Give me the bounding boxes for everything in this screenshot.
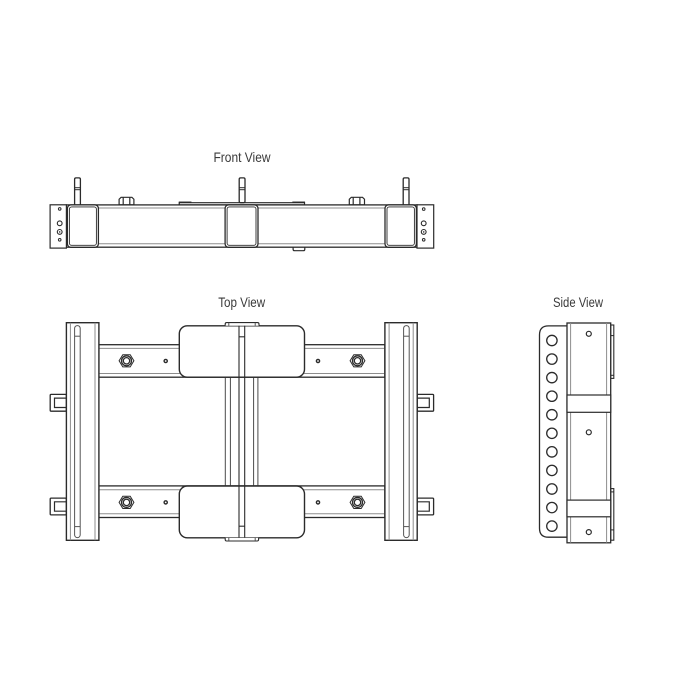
svg-text:Top View: Top View [218,295,265,310]
svg-text:Side View: Side View [553,295,603,310]
svg-text:Front View: Front View [214,150,271,165]
